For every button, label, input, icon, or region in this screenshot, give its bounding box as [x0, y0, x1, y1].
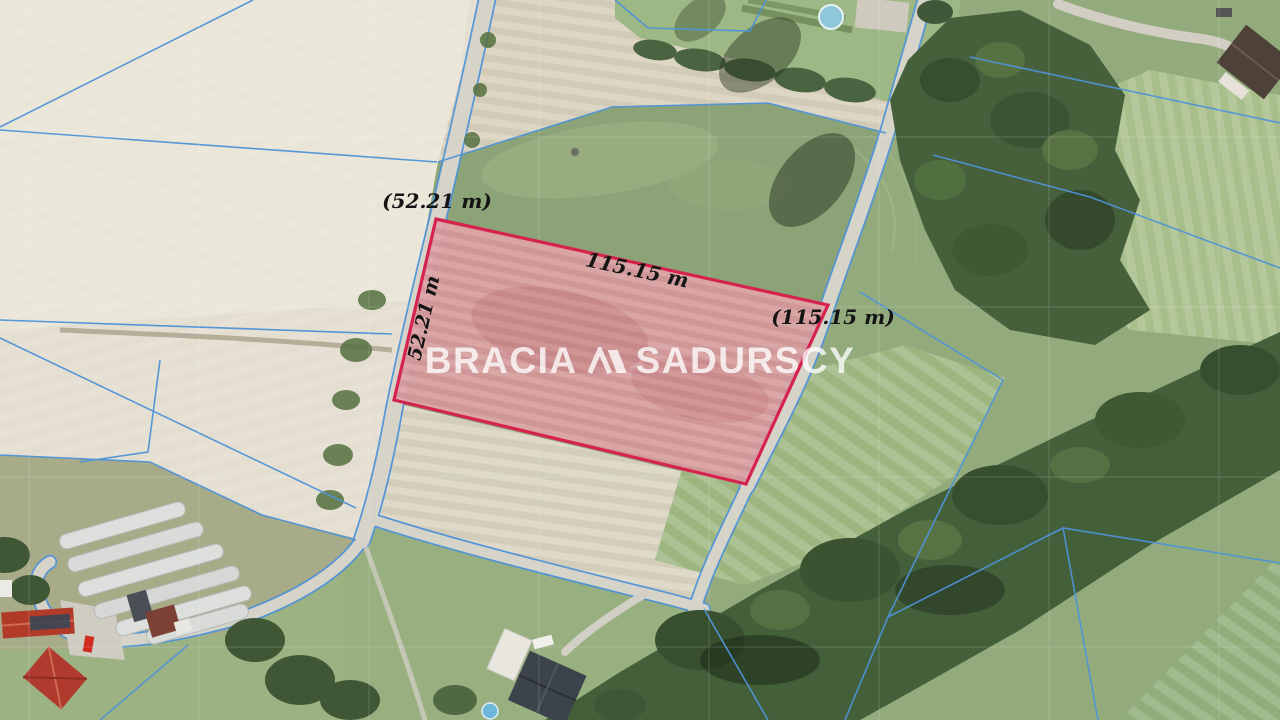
aerial-parcel-map: (52.21 m) 115.15 m (115.15 m) 52.21 m BR… [0, 0, 1280, 720]
dark-car [1216, 8, 1232, 17]
satellite-basemap: (52.21 m) 115.15 m (115.15 m) 52.21 m [0, 0, 1280, 720]
dimension-label-right: (115.15 m) [771, 305, 895, 329]
garden-pool [819, 5, 843, 29]
barn-red-roof [1, 608, 75, 639]
patio [855, 0, 910, 33]
white-hut [0, 580, 12, 597]
solar-panels [30, 614, 71, 631]
dimension-label-top: (52.21 m) [382, 189, 492, 213]
small-pool [482, 703, 498, 719]
